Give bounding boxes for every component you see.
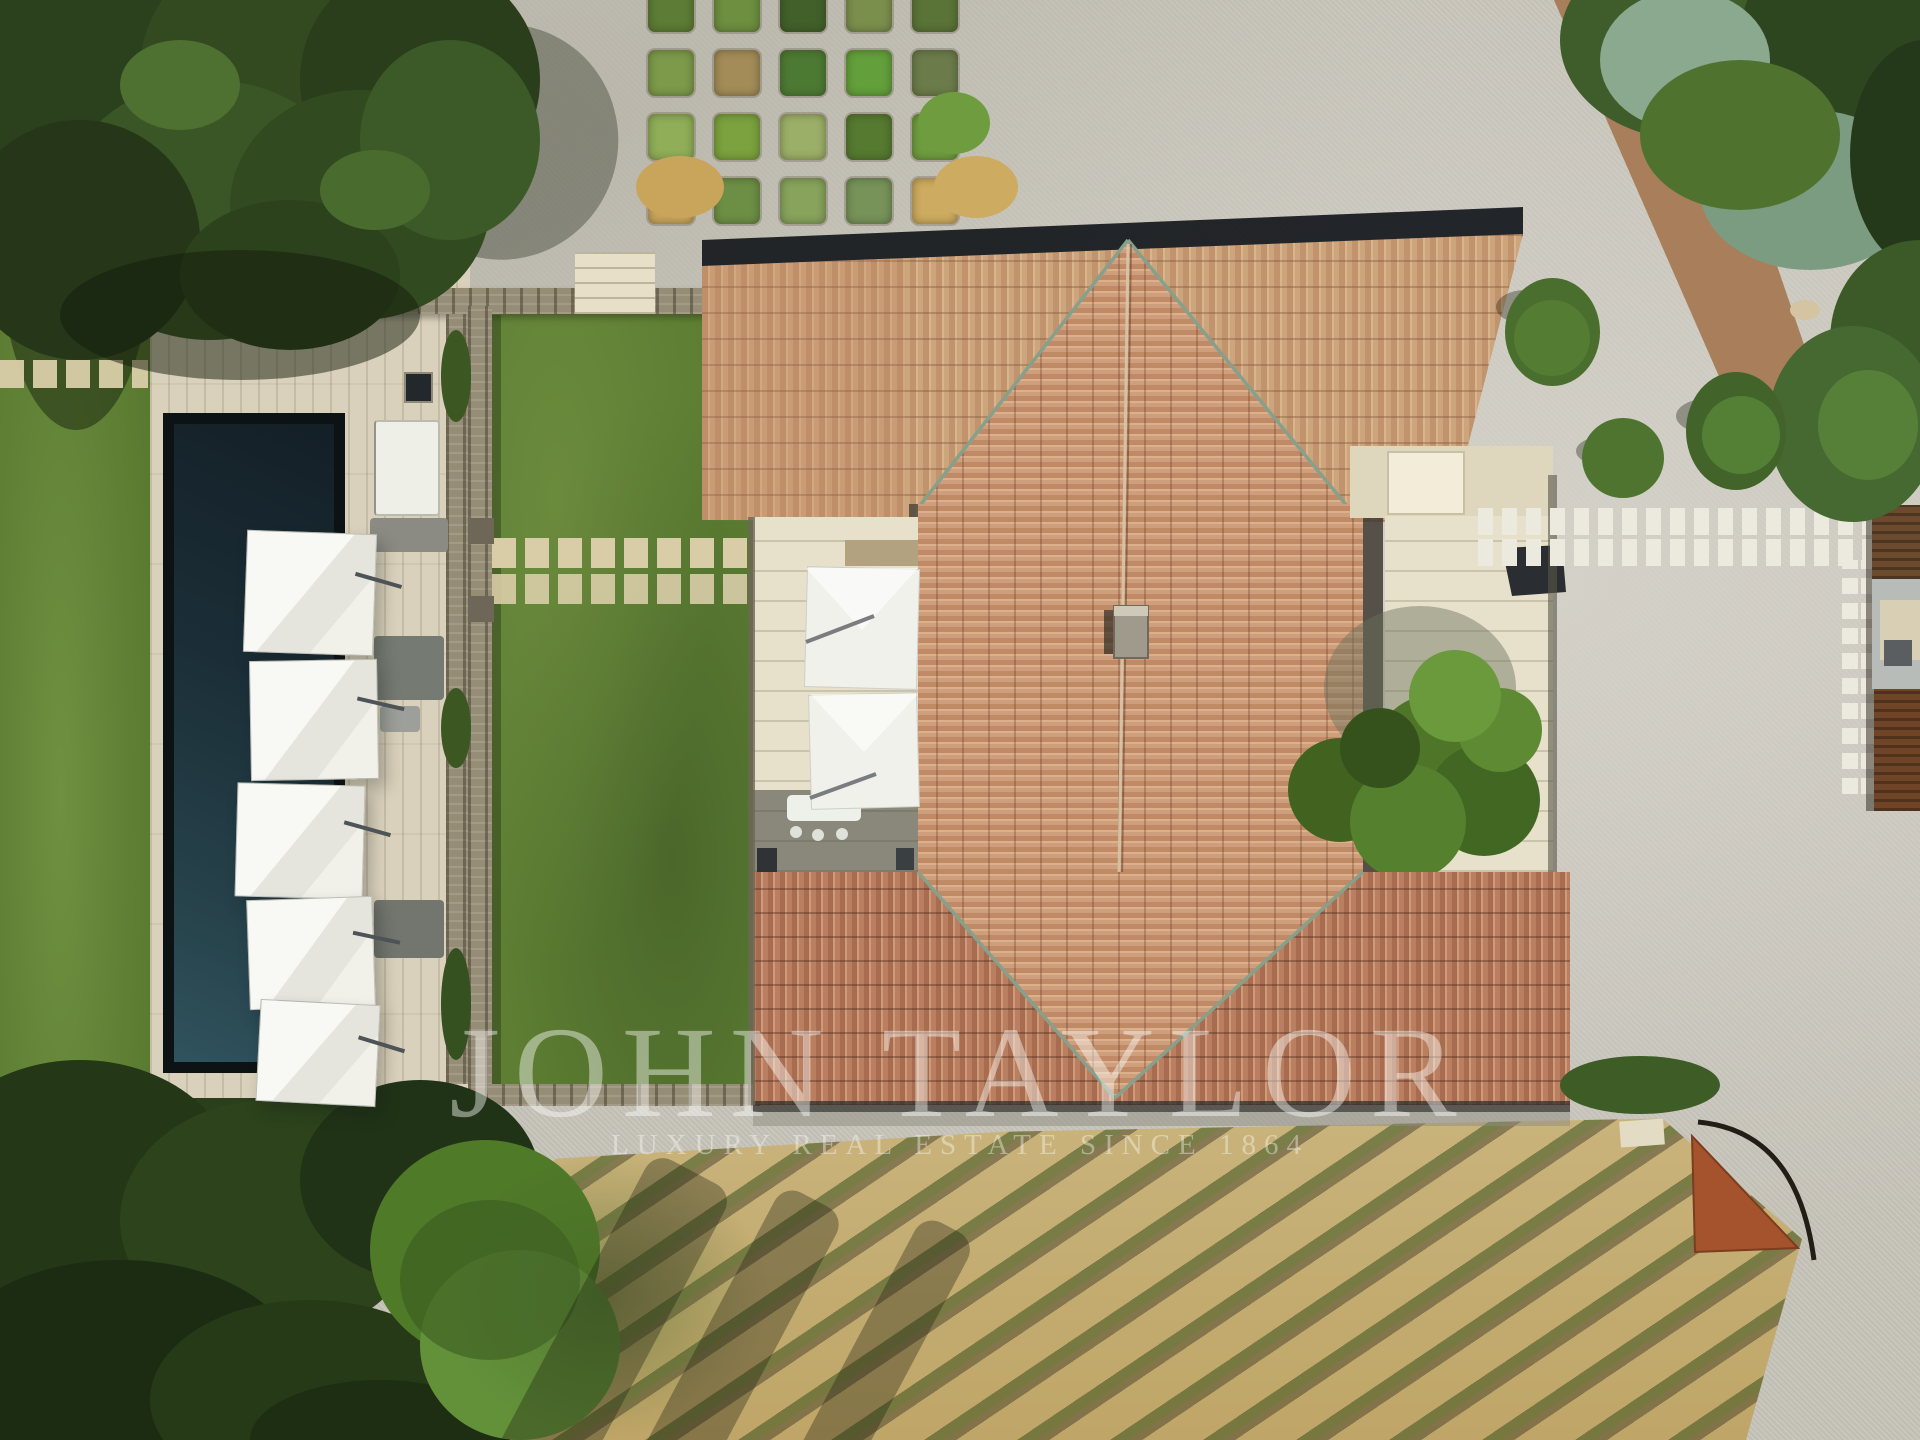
paver-walkway-horizontal bbox=[1478, 539, 1876, 566]
terrace-parasol bbox=[804, 567, 919, 690]
aerial-photo: JOHN TAYLOR LUXURY REAL ESTATE SINCE 186… bbox=[0, 0, 1920, 1440]
planter bbox=[896, 848, 914, 870]
corten-steel-wall bbox=[1692, 1136, 1798, 1252]
clipped-bush bbox=[1582, 418, 1664, 498]
stone-block bbox=[1619, 1118, 1665, 1147]
clipped-bush bbox=[1702, 396, 1780, 474]
terrace-bench bbox=[845, 540, 918, 566]
pool-parasol bbox=[235, 782, 366, 899]
east-door bbox=[1388, 452, 1464, 514]
deck-mat bbox=[370, 518, 448, 552]
watermark-tagline: LUXURY REAL ESTATE SINCE 1864 bbox=[611, 1128, 1309, 1162]
hedge-southeast bbox=[1560, 1056, 1720, 1114]
chimney-shadow bbox=[1104, 610, 1114, 654]
tree-highlight bbox=[1818, 370, 1918, 480]
pool-parasol bbox=[249, 659, 379, 781]
pine-highlight bbox=[320, 150, 430, 230]
clipped-bush bbox=[1514, 300, 1590, 376]
pool-parasol bbox=[255, 999, 380, 1107]
sun-lounger-pair-white bbox=[374, 420, 440, 516]
terrace-parasol bbox=[809, 693, 920, 810]
chair bbox=[790, 826, 802, 838]
watermark-brand: JOHN TAYLOR bbox=[449, 1008, 1470, 1138]
tree-top-right bbox=[1640, 60, 1840, 210]
sun-lounger-pair-gray bbox=[374, 636, 444, 700]
sun-lounger-pair-gray bbox=[374, 900, 444, 958]
paver-walkway-vertical bbox=[1842, 560, 1858, 794]
chair bbox=[836, 828, 848, 840]
chair bbox=[812, 829, 824, 841]
planter bbox=[757, 848, 777, 872]
deck-fire-feature bbox=[404, 372, 433, 403]
pine-highlight bbox=[120, 40, 240, 130]
pool-house-wood-roof bbox=[1874, 689, 1920, 811]
pool-parasol bbox=[243, 530, 377, 656]
tree-shadow bbox=[60, 250, 420, 380]
roof-tint bbox=[702, 258, 905, 520]
chimney-cap bbox=[1114, 606, 1148, 616]
pool-house-furniture bbox=[1884, 640, 1912, 666]
pool-parasol bbox=[246, 896, 376, 1010]
